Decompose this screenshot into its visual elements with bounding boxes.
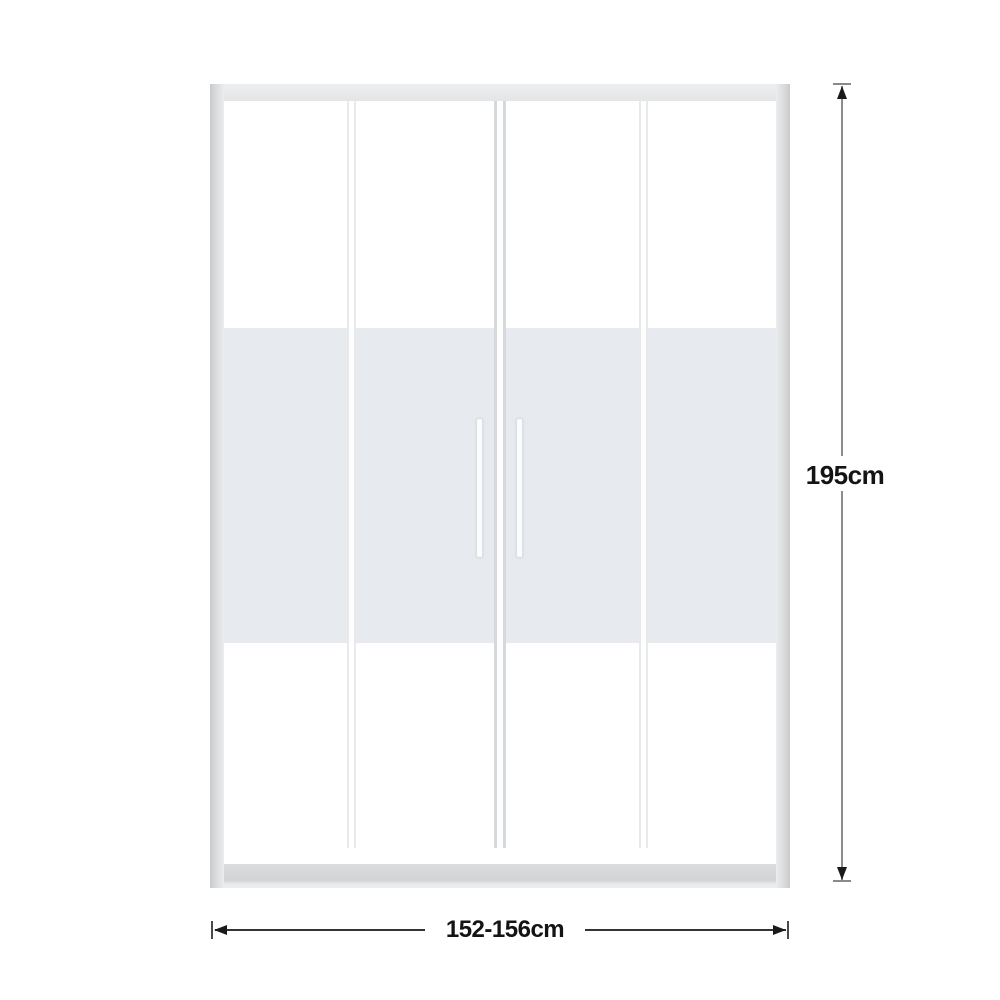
product-diagram: 195cm 152-156cm bbox=[0, 0, 1000, 1000]
width-end-cap-right bbox=[787, 921, 789, 939]
frame-top-rail bbox=[210, 84, 790, 101]
door-handle-right bbox=[516, 418, 523, 558]
frame-left-stile bbox=[210, 84, 224, 888]
panel-divider-left bbox=[347, 101, 356, 848]
width-dimension-line-right bbox=[565, 929, 786, 931]
height-dimension-line-upper bbox=[841, 86, 843, 456]
height-dimension-line-lower bbox=[841, 491, 843, 881]
height-end-cap-top bbox=[833, 83, 851, 85]
arrow-down-icon bbox=[837, 867, 847, 880]
frame-right-stile bbox=[776, 84, 790, 888]
frame-bottom-rail bbox=[210, 864, 790, 888]
panel-divider-right bbox=[639, 101, 648, 848]
arrow-up-icon bbox=[837, 86, 847, 99]
door-handle-left bbox=[476, 418, 483, 558]
width-dimension-line-left bbox=[215, 929, 445, 931]
arrow-left-icon bbox=[214, 925, 227, 935]
arrow-right-icon bbox=[773, 925, 786, 935]
glass-area bbox=[224, 101, 776, 848]
width-dimension-label: 152-156cm bbox=[425, 916, 585, 944]
height-dimension-label: 195cm bbox=[795, 460, 895, 491]
panel-divider-center bbox=[494, 101, 506, 848]
width-end-cap-left bbox=[211, 921, 213, 939]
shower-door bbox=[210, 84, 790, 888]
